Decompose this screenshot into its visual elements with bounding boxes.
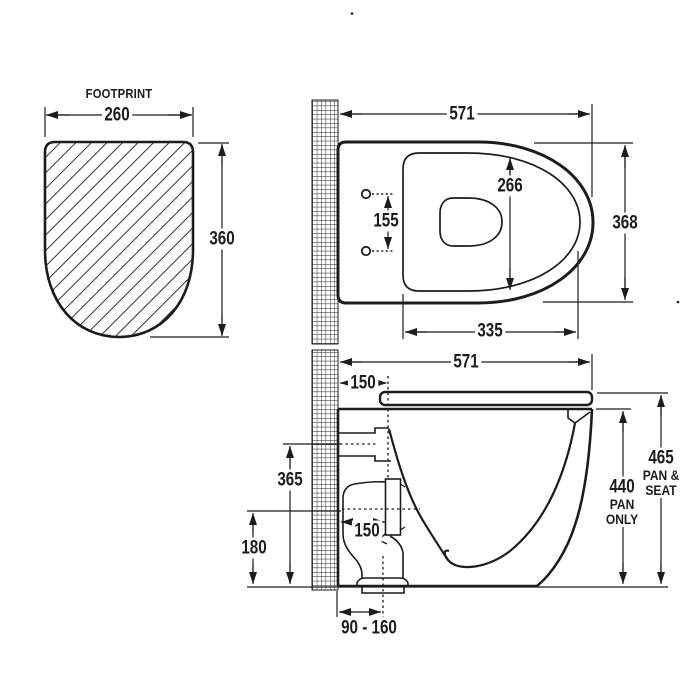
pan-seat-height-value: 465	[646, 448, 676, 469]
plan-hole-spacing-label: 155	[371, 211, 401, 232]
seat-lid	[380, 392, 592, 405]
side-view	[247, 354, 668, 617]
pan-profile	[338, 409, 592, 586]
plan-seat-depth-label: 266	[495, 176, 525, 197]
trap-setout-label: 150	[352, 521, 382, 542]
side-length-label: 571	[451, 352, 481, 373]
outlet-height-label: 180	[239, 538, 269, 559]
pan-height-word1: PAN	[608, 496, 636, 512]
footprint-view	[45, 107, 229, 337]
plan-bowl-opening	[440, 198, 502, 246]
toilet-dimension-drawing: FOOTPRINT 260 360 571 368 266 335 155 57…	[0, 0, 700, 700]
plan-seat-length-label: 335	[475, 321, 505, 342]
bowl-front-curve	[445, 423, 575, 567]
hinge-notch	[568, 409, 590, 423]
centerlines	[340, 376, 420, 617]
pan-seat-height-word2: SEAT	[644, 482, 679, 498]
pan-height-value: 440	[607, 477, 637, 498]
floor-outlet-label: 90 - 160	[339, 618, 400, 639]
wall-section	[312, 100, 338, 590]
footprint-width-label: 260	[102, 105, 132, 126]
pan-seat-height-word1: PAN &	[641, 467, 681, 483]
floor-outlet-dimension	[337, 591, 381, 617]
pan-height-word2: ONLY	[604, 511, 640, 527]
footprint-title: FOOTPRINT	[83, 87, 155, 102]
footprint-shape	[45, 142, 193, 337]
footprint-height-label: 360	[207, 229, 237, 250]
plan-seat-outline	[403, 153, 580, 291]
inlet-height-label: 365	[275, 470, 305, 491]
hinge-setout-label: 150	[348, 373, 378, 394]
plan-depth-label: 368	[610, 213, 640, 234]
plan-width-label: 571	[447, 104, 477, 125]
